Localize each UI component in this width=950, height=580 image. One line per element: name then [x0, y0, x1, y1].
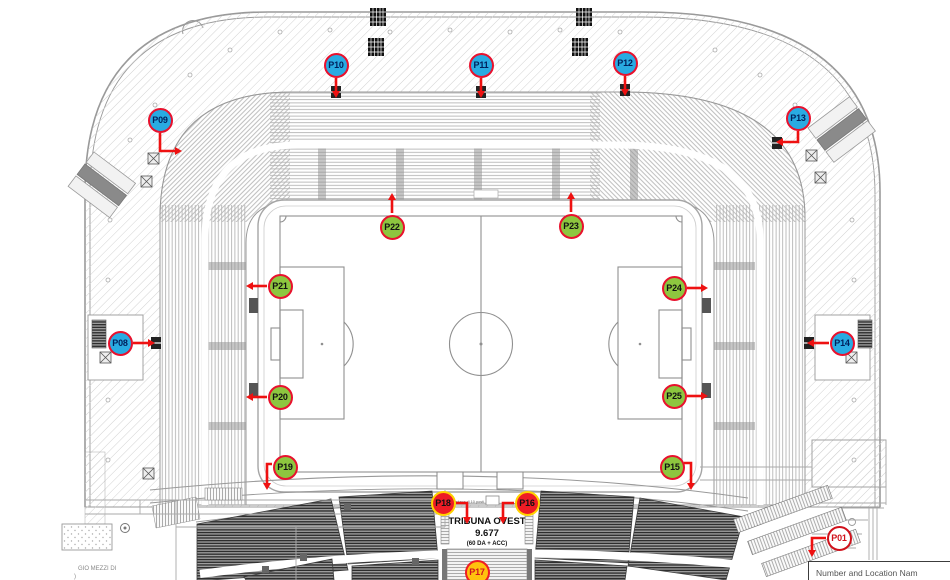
stadium-plan-page: TRIBUNA OVEST 9.677 (60 DA + ACC) Pedana… [0, 0, 950, 580]
margin-note-line2: ) [74, 574, 76, 580]
tribuna-ovest-label: TRIBUNA OVEST 9.677 (60 DA + ACC) [448, 516, 525, 547]
tribuna-name: TRIBUNA OVEST [448, 516, 525, 527]
platform-note: Pedana di 10 posti [453, 500, 485, 504]
margin-note-line1: GIO MEZZI DI [78, 566, 117, 572]
tribuna-note: (60 DA + ACC) [467, 541, 507, 547]
tribuna-capacity: 9.677 [475, 528, 499, 539]
stadium-drawing: TRIBUNA OVEST 9.677 (60 DA + ACC) Pedana… [0, 0, 950, 580]
pitch [249, 190, 711, 492]
legend-title: Number and Location Nam [816, 568, 918, 578]
legend-box: Number and Location Nam [808, 561, 950, 580]
